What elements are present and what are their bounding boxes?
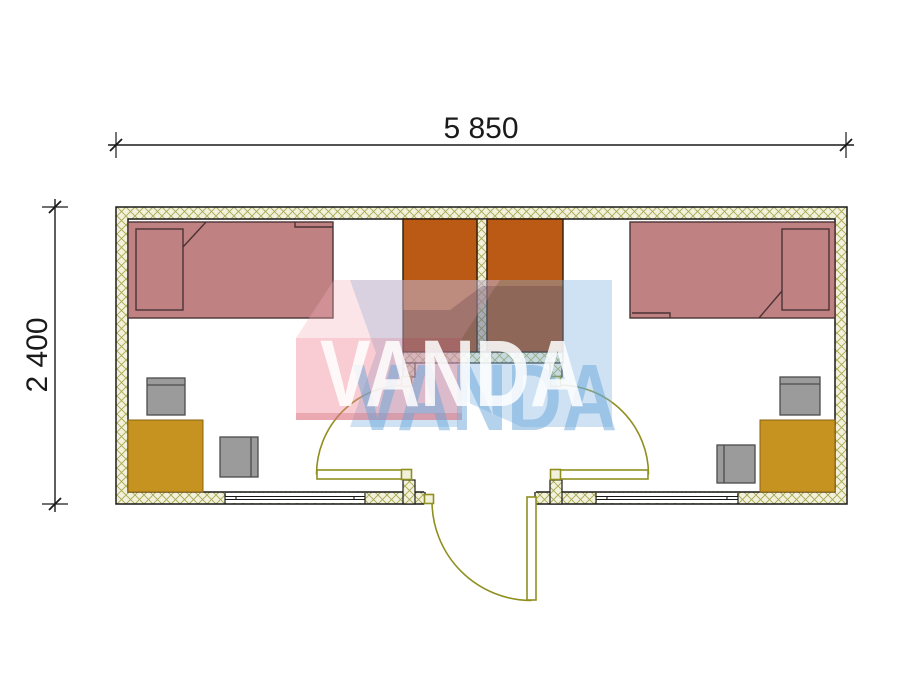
right-room-door-swing-arc xyxy=(559,385,649,475)
left-room-door-leaf xyxy=(317,470,406,479)
dimension-left: 2 400 xyxy=(21,199,68,512)
left-door-jamb-top xyxy=(402,377,412,387)
right-bed-pillow xyxy=(782,229,829,310)
chairs-group xyxy=(147,377,820,483)
left-bed xyxy=(128,222,333,318)
vestibule-left-wall-post xyxy=(403,480,415,504)
left-door-jamb-bottom xyxy=(402,470,412,480)
vestibule-right-wall-top xyxy=(550,363,562,377)
entry-door-leaf xyxy=(527,497,536,600)
right-desk xyxy=(760,420,835,492)
doors-group xyxy=(317,377,649,601)
right-chair-side xyxy=(717,445,755,483)
vestibule-right-wall-post xyxy=(550,480,562,504)
entry-door-swing-arc xyxy=(432,501,532,601)
entry-door-jamb-left xyxy=(425,495,434,504)
wardrobe-partition-wall xyxy=(477,219,487,352)
right-door-jamb-top xyxy=(551,377,561,387)
floor-plan-drawing: 5 850 2 400 VANDA VANDA xyxy=(0,0,924,700)
left-room-door-swing-arc xyxy=(317,385,407,475)
watermark-pink-bottom-edge xyxy=(296,413,462,420)
floor-plan-page: 5 850 2 400 VANDA VANDA xyxy=(0,0,924,700)
vestibule-left-wall-top xyxy=(403,363,415,377)
vestibule-back-wall xyxy=(403,352,563,363)
right-chair-top xyxy=(780,377,820,415)
dimension-width-label: 5 850 xyxy=(443,112,518,145)
door-jambs xyxy=(402,377,561,504)
entry-door-opening xyxy=(424,491,536,505)
left-desk xyxy=(128,420,203,492)
right-bed xyxy=(630,222,835,318)
left-bed-pillow xyxy=(136,229,183,310)
right-wardrobe xyxy=(487,219,563,352)
dimension-top: 5 850 xyxy=(108,112,854,158)
right-bottom-window xyxy=(596,493,738,504)
left-chair-side xyxy=(220,437,258,477)
right-room-door-leaf xyxy=(559,470,648,479)
dimension-height-label: 2 400 xyxy=(21,317,54,392)
left-bottom-window xyxy=(225,493,365,504)
right-door-jamb-bottom xyxy=(551,470,561,480)
left-wardrobe xyxy=(403,219,477,352)
left-chair-top xyxy=(147,378,185,415)
